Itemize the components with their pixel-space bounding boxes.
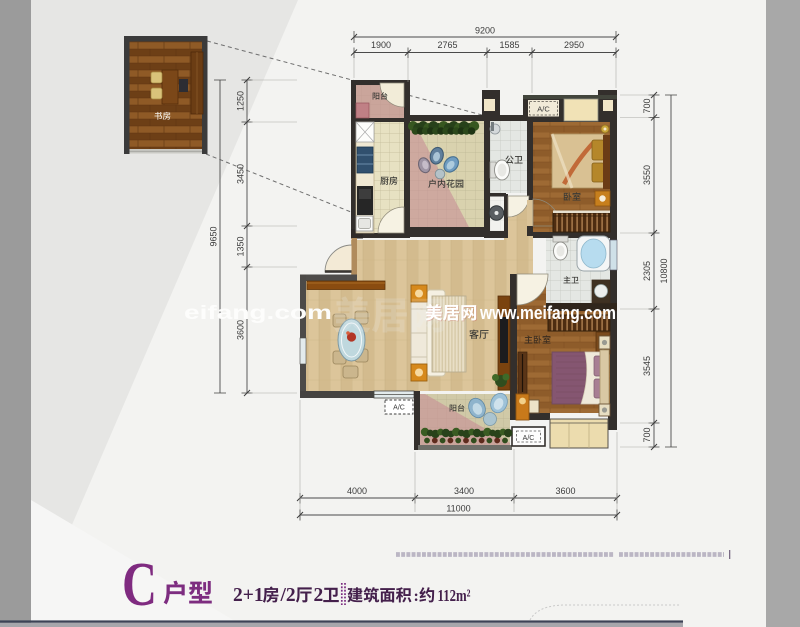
svg-text:A/C: A/C — [393, 405, 405, 412]
svg-text:3600: 3600 — [555, 486, 575, 496]
svg-text:3550: 3550 — [642, 165, 652, 185]
svg-text:/2: /2 — [280, 585, 296, 606]
svg-text:2765: 2765 — [437, 40, 457, 50]
svg-text:eifang.com: eifang.com — [184, 303, 332, 324]
svg-text:1585: 1585 — [499, 40, 519, 50]
svg-text:700: 700 — [642, 98, 652, 113]
svg-text:2: 2 — [314, 585, 324, 606]
svg-text:A/C: A/C — [523, 435, 535, 442]
svg-text:A/C: A/C — [537, 105, 550, 114]
svg-text:10800: 10800 — [659, 258, 669, 283]
svg-text:C: C — [122, 551, 157, 619]
svg-text:2950: 2950 — [564, 40, 584, 50]
svg-text:700: 700 — [642, 427, 652, 442]
svg-text:4000: 4000 — [347, 486, 367, 496]
svg-text:www.meifang.com: www.meifang.com — [479, 303, 616, 323]
svg-text:2305: 2305 — [642, 261, 652, 281]
svg-text:1900: 1900 — [371, 40, 391, 50]
svg-text:1350: 1350 — [236, 236, 246, 256]
svg-text:112m²: 112m² — [438, 586, 471, 605]
svg-text:3545: 3545 — [642, 356, 652, 376]
svg-text:3450: 3450 — [236, 164, 246, 184]
svg-text:1250: 1250 — [236, 91, 246, 111]
svg-text:2+1: 2+1 — [233, 585, 264, 606]
svg-text:9200: 9200 — [475, 26, 495, 36]
svg-text::: : — [414, 588, 419, 605]
svg-text:3400: 3400 — [454, 486, 474, 496]
svg-text:11000: 11000 — [446, 504, 470, 514]
svg-text:9650: 9650 — [209, 226, 219, 246]
